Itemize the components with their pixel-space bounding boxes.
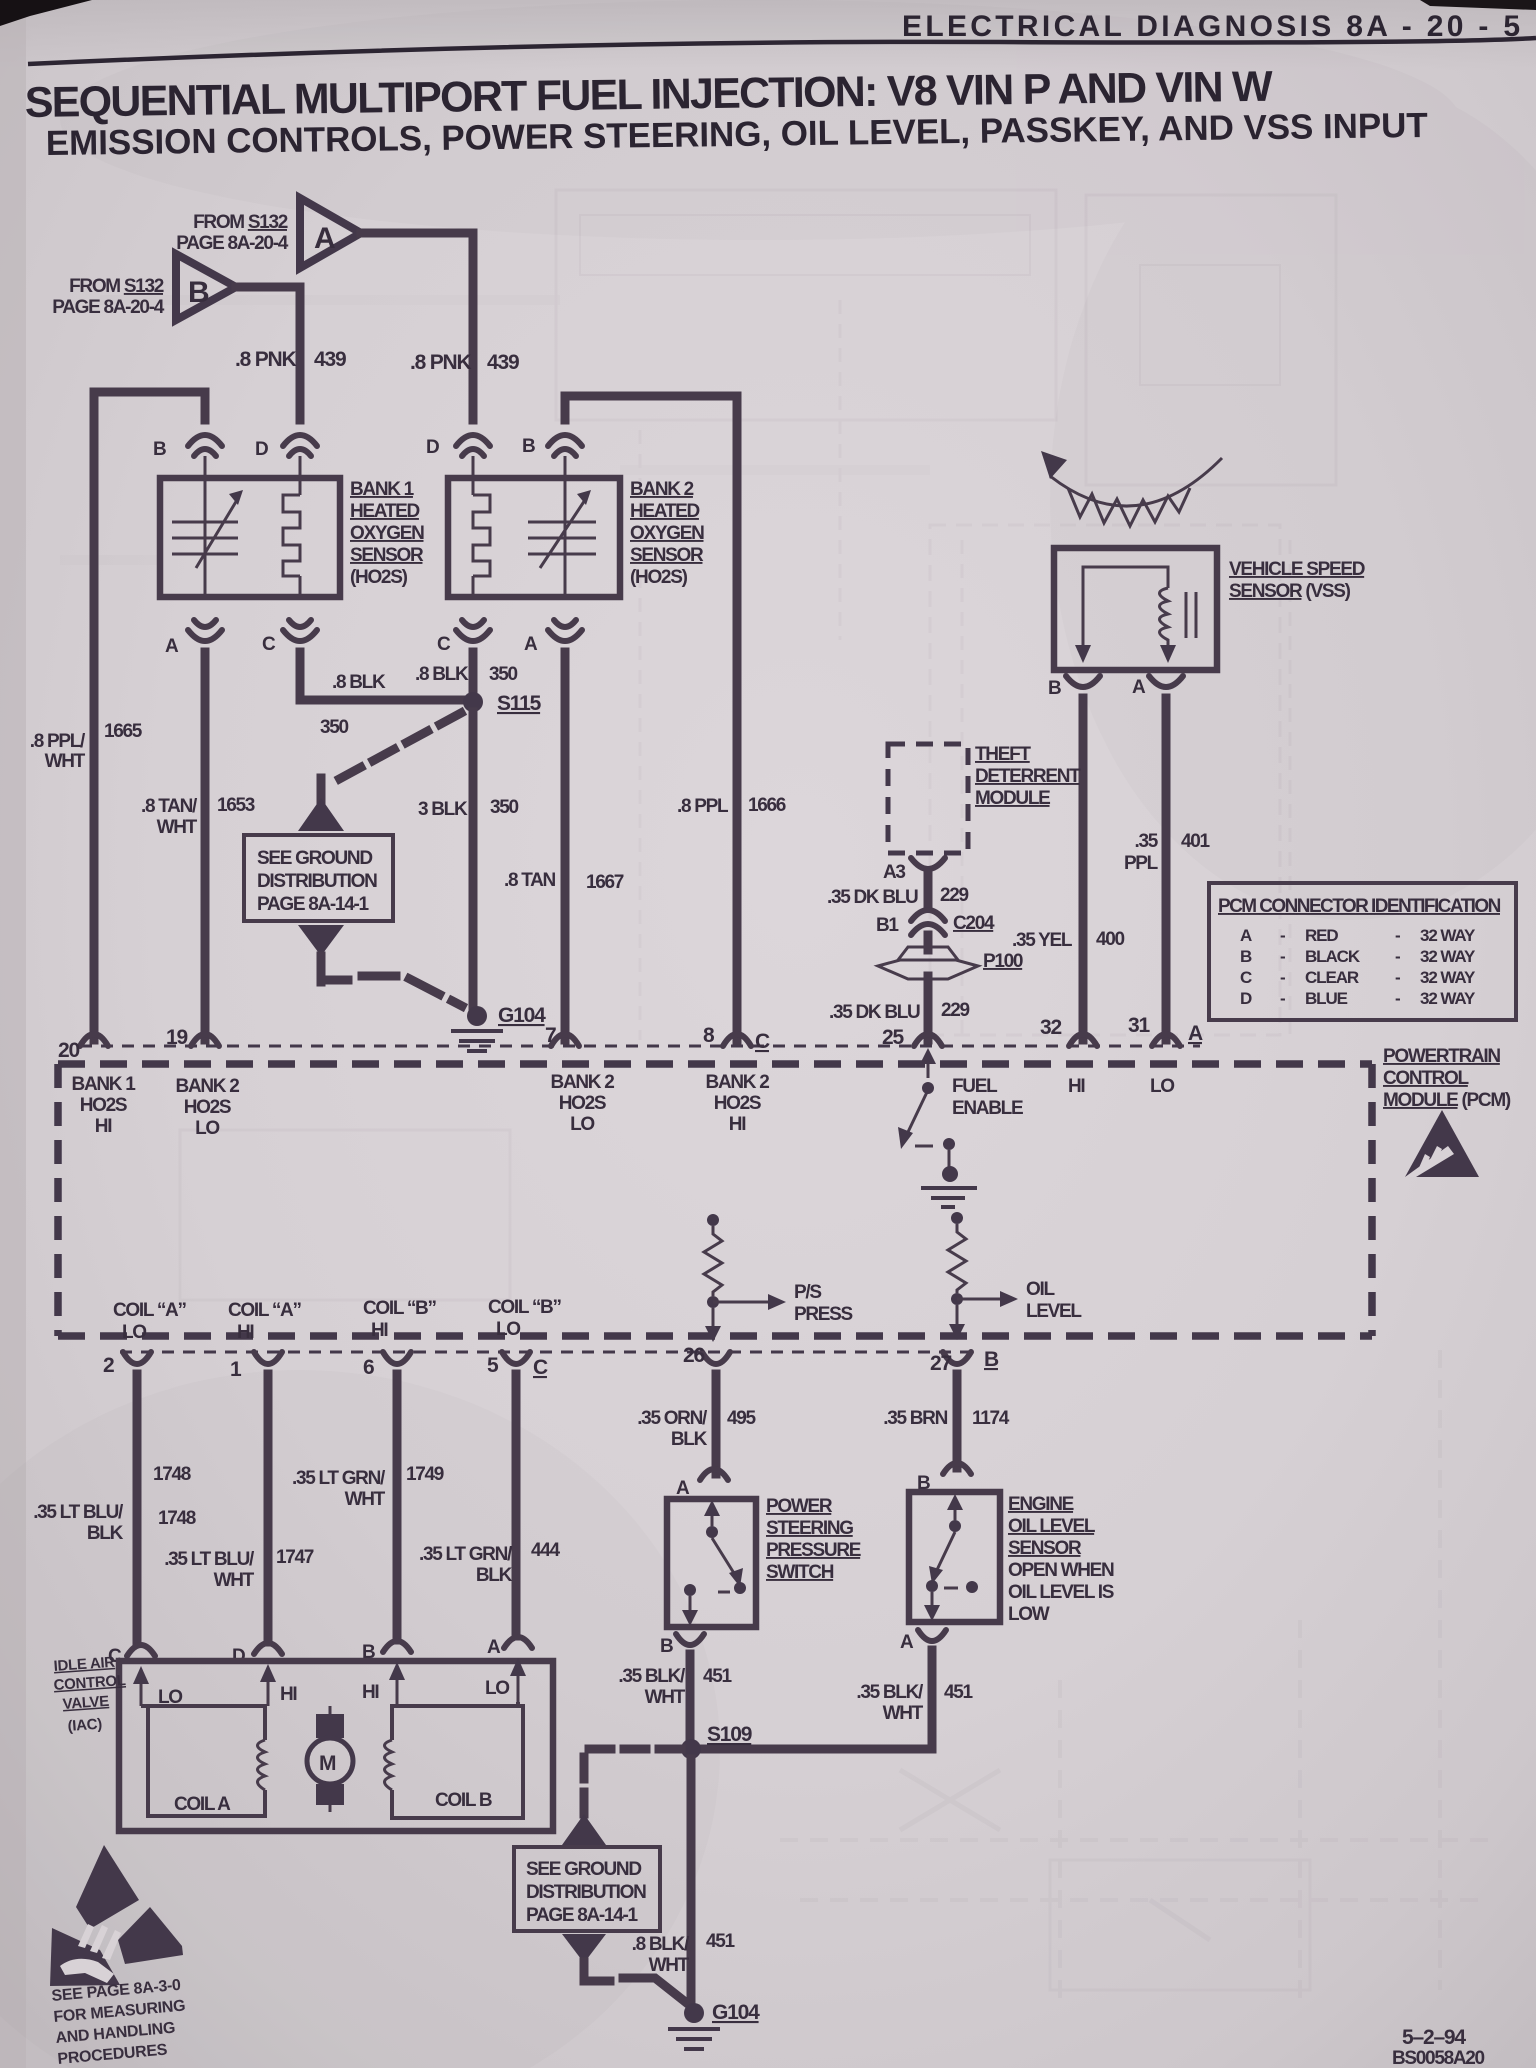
svg-text:C: C	[1240, 968, 1252, 987]
svg-text:-: -	[1395, 947, 1400, 966]
svg-text:32 WAY: 32 WAY	[1420, 947, 1476, 966]
svg-text:ENABLE: ENABLE	[952, 1098, 1023, 1119]
svg-text:LO: LO	[570, 1114, 594, 1135]
svg-text:HEATED: HEATED	[630, 501, 699, 522]
svg-text:SEE GROUND: SEE GROUND	[257, 848, 372, 869]
svg-text:A: A	[165, 636, 179, 657]
svg-text:25: 25	[882, 1026, 904, 1049]
svg-text:G104: G104	[712, 2001, 760, 2024]
svg-text:1747: 1747	[276, 1547, 314, 1568]
svg-text:8: 8	[703, 1024, 715, 1047]
svg-text:B: B	[153, 439, 166, 460]
svg-text:.35 BLK/: .35 BLK/	[618, 1666, 686, 1687]
svg-text:7: 7	[545, 1024, 556, 1047]
svg-text:27: 27	[930, 1352, 951, 1375]
svg-text:2: 2	[103, 1354, 114, 1377]
svg-text:HO2S: HO2S	[714, 1093, 761, 1114]
svg-text:.8 BLK: .8 BLK	[415, 664, 469, 685]
svg-text:1666: 1666	[748, 795, 786, 816]
svg-text:PAGE 8A-20-4: PAGE 8A-20-4	[176, 233, 288, 254]
svg-text:1748: 1748	[158, 1508, 196, 1529]
svg-text:C: C	[533, 1356, 548, 1379]
svg-text:350: 350	[320, 717, 349, 738]
svg-text:HI: HI	[237, 1322, 254, 1343]
svg-text:LO: LO	[485, 1678, 509, 1699]
svg-text:-: -	[1395, 926, 1400, 945]
svg-text:VEHICLE SPEED: VEHICLE SPEED	[1229, 559, 1365, 580]
svg-text:BANK 1: BANK 1	[72, 1074, 137, 1095]
svg-text:CLEAR: CLEAR	[1305, 968, 1359, 987]
svg-text:1749: 1749	[406, 1464, 444, 1485]
svg-text:P/S: P/S	[794, 1282, 821, 1303]
svg-text:VALVE: VALVE	[62, 1693, 110, 1713]
svg-text:.35 LT BLU/: .35 LT BLU/	[33, 1502, 124, 1523]
svg-text:LEVEL: LEVEL	[1026, 1301, 1082, 1322]
svg-text:WHT: WHT	[645, 1687, 686, 1708]
svg-text:COIL “B”: COIL “B”	[363, 1298, 436, 1319]
svg-text:B: B	[188, 276, 210, 309]
svg-text:DETERRENT: DETERRENT	[975, 766, 1081, 787]
svg-text:.8 TAN: .8 TAN	[504, 870, 556, 891]
svg-text:3 BLK: 3 BLK	[418, 799, 468, 820]
svg-text:A: A	[487, 1637, 501, 1658]
svg-text:RED: RED	[1305, 926, 1338, 945]
svg-text:OIL LEVEL: OIL LEVEL	[1008, 1516, 1096, 1537]
svg-text:S109: S109	[707, 1723, 752, 1746]
svg-text:32 WAY: 32 WAY	[1420, 926, 1476, 945]
svg-text:A: A	[900, 1632, 914, 1653]
svg-text:350: 350	[490, 797, 519, 818]
svg-text:1748: 1748	[153, 1464, 191, 1485]
svg-text:.35 LT BLU/: .35 LT BLU/	[164, 1549, 255, 1570]
svg-text:.35 ORN/: .35 ORN/	[637, 1408, 708, 1429]
svg-text:20: 20	[58, 1039, 79, 1062]
svg-text:350: 350	[489, 664, 518, 685]
svg-text:B: B	[1240, 947, 1252, 966]
svg-text:PAGE 8A-14-1: PAGE 8A-14-1	[526, 1905, 638, 1926]
svg-text:32 WAY: 32 WAY	[1420, 968, 1476, 987]
svg-text:.8 BLK/: .8 BLK/	[632, 1934, 690, 1955]
svg-text:A3: A3	[883, 862, 905, 883]
svg-text:POWERTRAIN: POWERTRAIN	[1383, 1046, 1500, 1067]
svg-text:32 WAY: 32 WAY	[1420, 989, 1476, 1008]
svg-text:SWITCH: SWITCH	[766, 1562, 834, 1583]
svg-text:(IAC): (IAC)	[67, 1716, 103, 1735]
svg-text:B1: B1	[876, 915, 899, 936]
svg-text:1665: 1665	[104, 721, 143, 742]
svg-text:COIL “B”: COIL “B”	[488, 1297, 561, 1318]
svg-text:.35 DK BLU: .35 DK BLU	[827, 887, 918, 908]
svg-text:401: 401	[1181, 831, 1211, 852]
svg-text:HO2S: HO2S	[80, 1095, 127, 1116]
svg-text:.35 LT GRN/: .35 LT GRN/	[292, 1468, 386, 1489]
svg-text:WHT: WHT	[883, 1703, 924, 1724]
svg-text:C: C	[437, 634, 451, 655]
svg-text:BANK 2: BANK 2	[630, 479, 694, 500]
svg-text:ELECTRICAL DIAGNOSIS 8A - 20 -: ELECTRICAL DIAGNOSIS 8A - 20 - 5	[902, 10, 1520, 43]
svg-text:LO: LO	[195, 1118, 219, 1139]
svg-text:OXYGEN: OXYGEN	[630, 523, 704, 544]
svg-text:STEERING: STEERING	[766, 1518, 853, 1539]
svg-text:HI: HI	[1068, 1076, 1085, 1097]
svg-text:BLK: BLK	[87, 1523, 124, 1544]
svg-text:.8 TAN/: .8 TAN/	[141, 796, 198, 817]
svg-text:-: -	[1395, 968, 1400, 987]
svg-text:MODULE (PCM): MODULE (PCM)	[1383, 1090, 1511, 1111]
svg-text:5–2–94: 5–2–94	[1402, 2026, 1466, 2049]
svg-text:-: -	[1280, 989, 1285, 1008]
svg-text:WHT: WHT	[345, 1489, 386, 1510]
svg-text:BLK: BLK	[671, 1429, 708, 1450]
svg-text:229: 229	[940, 885, 969, 906]
svg-text:PAGE 8A-20-4: PAGE 8A-20-4	[52, 297, 164, 318]
svg-text:WHT: WHT	[45, 751, 86, 772]
svg-text:439: 439	[487, 351, 519, 374]
svg-text:5: 5	[487, 1354, 499, 1377]
svg-text:HI: HI	[95, 1116, 112, 1137]
svg-text:.8 BLK: .8 BLK	[332, 672, 386, 693]
svg-text:31: 31	[1128, 1014, 1150, 1037]
svg-text:451: 451	[706, 1931, 736, 1952]
svg-text:BANK 1: BANK 1	[350, 479, 415, 500]
svg-text:229: 229	[941, 1000, 970, 1021]
svg-text:A: A	[524, 634, 538, 655]
svg-text:6: 6	[363, 1356, 374, 1379]
svg-text:1174: 1174	[972, 1408, 1010, 1429]
svg-text:451: 451	[944, 1682, 974, 1703]
svg-text:ENGINE: ENGINE	[1008, 1494, 1074, 1515]
svg-text:THEFT: THEFT	[975, 744, 1031, 765]
svg-text:POWER: POWER	[766, 1496, 833, 1517]
svg-text:SENSOR: SENSOR	[630, 545, 704, 566]
svg-text:495: 495	[727, 1408, 757, 1429]
svg-text:PCM CONNECTOR IDENTIFICATION: PCM CONNECTOR IDENTIFICATION	[1218, 896, 1501, 917]
svg-text:SENSOR: SENSOR	[1008, 1538, 1082, 1559]
svg-text:32: 32	[1040, 1016, 1061, 1039]
svg-text:D: D	[426, 437, 439, 458]
svg-text:-: -	[1395, 989, 1400, 1008]
svg-text:439: 439	[314, 348, 346, 371]
svg-text:COIL B: COIL B	[435, 1790, 492, 1811]
svg-text:SENSOR: SENSOR	[350, 545, 424, 566]
svg-text:S115: S115	[497, 692, 542, 715]
svg-text:MODULE: MODULE	[975, 788, 1050, 809]
svg-text:BLACK: BLACK	[1305, 947, 1361, 966]
svg-text:HO2S: HO2S	[559, 1093, 606, 1114]
svg-text:OPEN WHEN: OPEN WHEN	[1008, 1560, 1114, 1581]
svg-text:C: C	[755, 1030, 770, 1053]
svg-text:-: -	[1280, 947, 1285, 966]
svg-text:HI: HI	[729, 1114, 746, 1135]
svg-text:WHT: WHT	[649, 1955, 690, 1976]
svg-text:.35 BLK/: .35 BLK/	[856, 1682, 924, 1703]
svg-text:D: D	[255, 439, 268, 460]
svg-text:.35 BRN: .35 BRN	[883, 1408, 947, 1429]
svg-text:BANK 2: BANK 2	[551, 1072, 615, 1093]
svg-text:FROM S132: FROM S132	[193, 212, 288, 233]
svg-text:PAGE 8A-14-1: PAGE 8A-14-1	[257, 894, 369, 915]
svg-text:G104: G104	[498, 1004, 546, 1027]
svg-text:COIL “A”: COIL “A”	[228, 1300, 301, 1321]
svg-text:DISTRIBUTION: DISTRIBUTION	[257, 871, 377, 892]
svg-text:FROM S132: FROM S132	[69, 276, 164, 297]
svg-text:B: B	[984, 1348, 999, 1371]
svg-text:.8 PNK: .8 PNK	[410, 351, 472, 374]
svg-text:SENSOR (VSS): SENSOR (VSS)	[1229, 581, 1351, 602]
svg-text:-: -	[1280, 968, 1285, 987]
svg-text:444: 444	[531, 1540, 561, 1561]
svg-text:COIL “A”: COIL “A”	[113, 1300, 186, 1321]
svg-text:.8 PPL: .8 PPL	[677, 796, 729, 817]
svg-text:400: 400	[1096, 929, 1125, 950]
svg-text:M: M	[319, 1752, 336, 1775]
svg-text:.8 PPL/: .8 PPL/	[30, 731, 86, 752]
svg-text:.35 LT GRN/: .35 LT GRN/	[419, 1544, 513, 1565]
svg-text:WHT: WHT	[157, 817, 198, 838]
svg-text:P100: P100	[983, 951, 1023, 972]
svg-text:A: A	[1132, 677, 1146, 698]
svg-text:PRESSURE: PRESSURE	[766, 1540, 861, 1561]
svg-text:DISTRIBUTION: DISTRIBUTION	[526, 1882, 646, 1903]
svg-text:.35 DK BLU: .35 DK BLU	[829, 1002, 920, 1023]
svg-text:(HO2S): (HO2S)	[350, 567, 408, 588]
svg-text:.35: .35	[1134, 831, 1158, 852]
svg-text:C: C	[262, 634, 276, 655]
svg-text:451: 451	[703, 1666, 733, 1687]
svg-text:FUEL: FUEL	[952, 1076, 998, 1097]
svg-text:HO2S: HO2S	[184, 1097, 231, 1118]
svg-text:1: 1	[230, 1358, 242, 1381]
svg-text:CONTROL: CONTROL	[1383, 1068, 1470, 1089]
svg-text:B: B	[660, 1636, 673, 1657]
svg-text:(HO2S): (HO2S)	[630, 567, 688, 588]
svg-text:A: A	[314, 222, 336, 255]
svg-text:HI: HI	[280, 1684, 297, 1705]
svg-text:B: B	[1048, 678, 1061, 699]
svg-text:.8 PNK: .8 PNK	[235, 348, 297, 371]
svg-text:A: A	[1240, 926, 1252, 945]
svg-text:PPL: PPL	[1124, 853, 1159, 874]
svg-text:WHT: WHT	[214, 1570, 255, 1591]
svg-text:-: -	[1280, 926, 1285, 945]
svg-text:C204: C204	[953, 913, 995, 934]
svg-text:COIL A: COIL A	[174, 1794, 231, 1815]
svg-text:26: 26	[683, 1344, 704, 1367]
svg-text:LO: LO	[496, 1319, 520, 1340]
svg-text:HEATED: HEATED	[350, 501, 419, 522]
svg-text:OXYGEN: OXYGEN	[350, 523, 424, 544]
svg-text:1653: 1653	[217, 795, 255, 816]
svg-text:LO: LO	[1150, 1076, 1174, 1097]
svg-text:OIL: OIL	[1026, 1279, 1055, 1300]
svg-text:A: A	[1188, 1022, 1203, 1045]
svg-text:LOW: LOW	[1008, 1604, 1050, 1625]
svg-text:HI: HI	[371, 1320, 388, 1341]
svg-text:B: B	[522, 436, 535, 457]
svg-text:LO: LO	[122, 1322, 146, 1343]
svg-text:.35 YEL: .35 YEL	[1012, 930, 1073, 951]
svg-text:BANK 2: BANK 2	[706, 1072, 770, 1093]
svg-text:PRESS: PRESS	[794, 1304, 853, 1325]
svg-text:D: D	[1240, 989, 1252, 1008]
svg-text:OIL LEVEL IS: OIL LEVEL IS	[1008, 1582, 1114, 1603]
svg-text:BLUE: BLUE	[1305, 989, 1348, 1008]
svg-text:BS0058A20: BS0058A20	[1392, 2048, 1485, 2068]
svg-text:BLK: BLK	[476, 1565, 513, 1586]
svg-text:19: 19	[166, 1026, 187, 1049]
svg-text:1667: 1667	[586, 872, 624, 893]
svg-text:HI: HI	[362, 1682, 379, 1703]
svg-text:SEE GROUND: SEE GROUND	[526, 1859, 641, 1880]
svg-text:BANK 2: BANK 2	[176, 1076, 240, 1097]
